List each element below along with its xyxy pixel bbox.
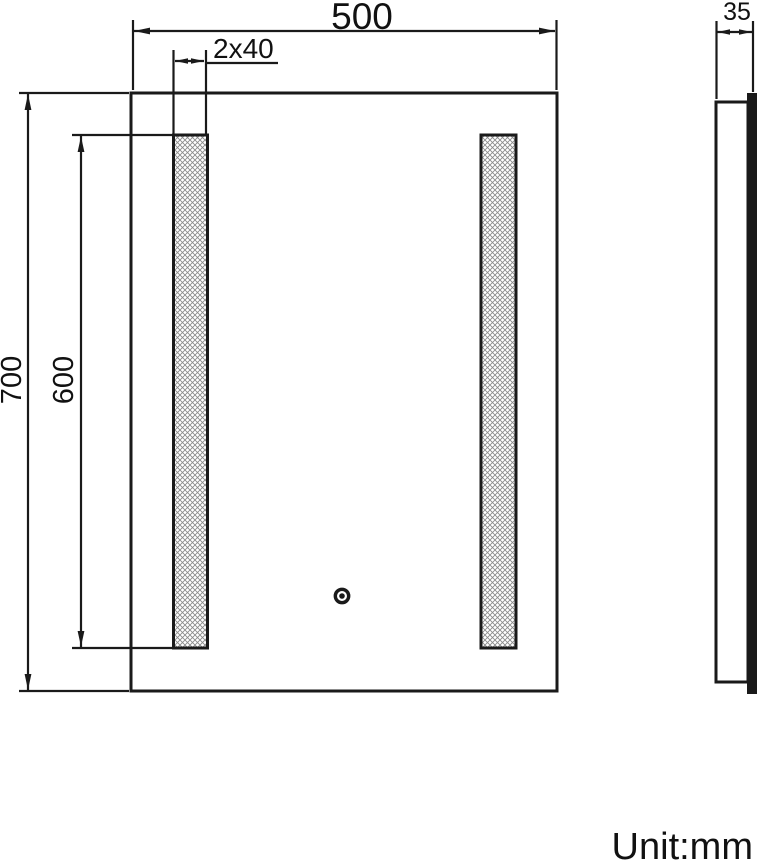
arrowhead-left-icon xyxy=(134,28,150,35)
front-view xyxy=(131,93,557,691)
arrowhead-down-icon xyxy=(25,674,32,690)
side-glass-panel xyxy=(747,93,757,694)
led-strip-left xyxy=(174,135,208,648)
arrowhead-right-icon xyxy=(739,29,752,35)
arrowhead-right-icon xyxy=(191,58,204,64)
mirror-technical-drawing: 500 2x40 700 600 xyxy=(0,0,758,867)
led-strip-right xyxy=(481,135,516,648)
width-dim-label: 500 xyxy=(331,0,393,37)
drawing-svg: 500 2x40 700 600 xyxy=(0,0,758,867)
strip-height-dim-label: 600 xyxy=(48,356,80,404)
dimension-depth: 35 xyxy=(717,0,754,99)
height-dim-label: 700 xyxy=(0,356,28,404)
arrowhead-left-icon xyxy=(718,29,731,35)
strip-width-dim-label: 2x40 xyxy=(213,33,274,64)
arrowhead-right-icon xyxy=(539,28,555,35)
side-body-outline xyxy=(716,102,748,682)
arrowhead-up-icon xyxy=(78,137,85,153)
unit-label: Unit:mm xyxy=(612,826,753,867)
dimension-width: 500 xyxy=(133,0,557,90)
touch-sensor-dot xyxy=(339,593,345,599)
side-view xyxy=(716,93,757,694)
arrowhead-down-icon xyxy=(78,631,85,647)
arrowhead-up-icon xyxy=(25,94,32,110)
depth-dim-label: 35 xyxy=(723,0,751,26)
arrowhead-left-icon xyxy=(175,58,188,64)
